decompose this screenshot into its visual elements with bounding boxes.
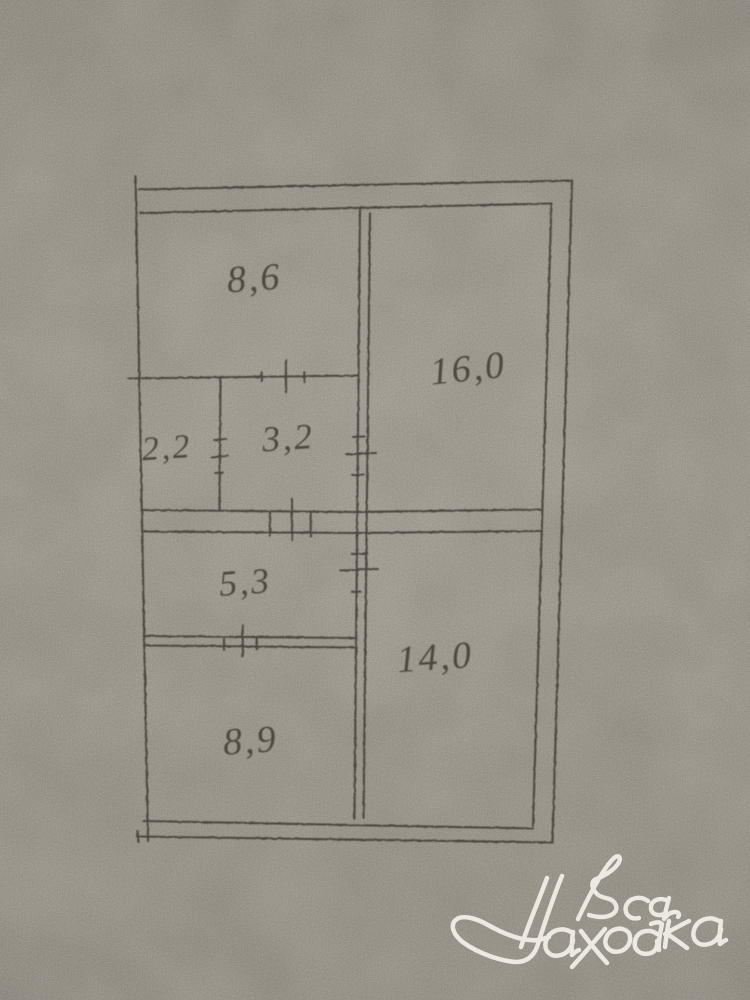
- svg-text:5,3: 5,3: [218, 560, 273, 604]
- svg-text:8,6: 8,6: [225, 256, 283, 302]
- svg-text:14,0: 14,0: [396, 634, 475, 681]
- svg-text:2,2: 2,2: [141, 428, 193, 468]
- svg-text:3,2: 3,2: [260, 416, 316, 460]
- svg-text:16,0: 16,0: [428, 344, 508, 394]
- svg-text:8,9: 8,9: [222, 718, 280, 764]
